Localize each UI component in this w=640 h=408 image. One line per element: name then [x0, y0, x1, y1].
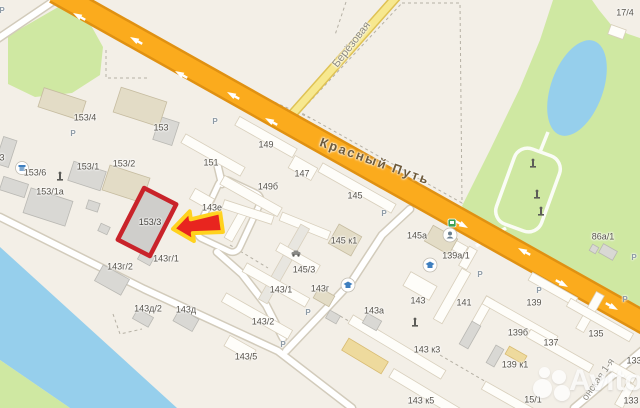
- bus-stop-icon: [448, 219, 456, 227]
- avito-logo-icon: [539, 367, 550, 378]
- avito-logo-icon: [554, 385, 570, 401]
- person-service-icon: [443, 228, 457, 242]
- avito-watermark-text: Avito: [569, 364, 640, 398]
- avito-logo-icon: [533, 379, 552, 398]
- map-canvas[interactable]: 153/4153153/1153/2153/6153/1а31511491471…: [0, 0, 640, 408]
- shop-icon: [16, 162, 29, 175]
- map-graphics: [0, 0, 640, 408]
- avito-watermark: Avito: [533, 362, 640, 402]
- avito-logo-icon: [552, 370, 566, 384]
- highlighted-building-label: 153/3: [139, 217, 162, 227]
- education-icon: [423, 258, 437, 272]
- education-icon: [341, 278, 355, 292]
